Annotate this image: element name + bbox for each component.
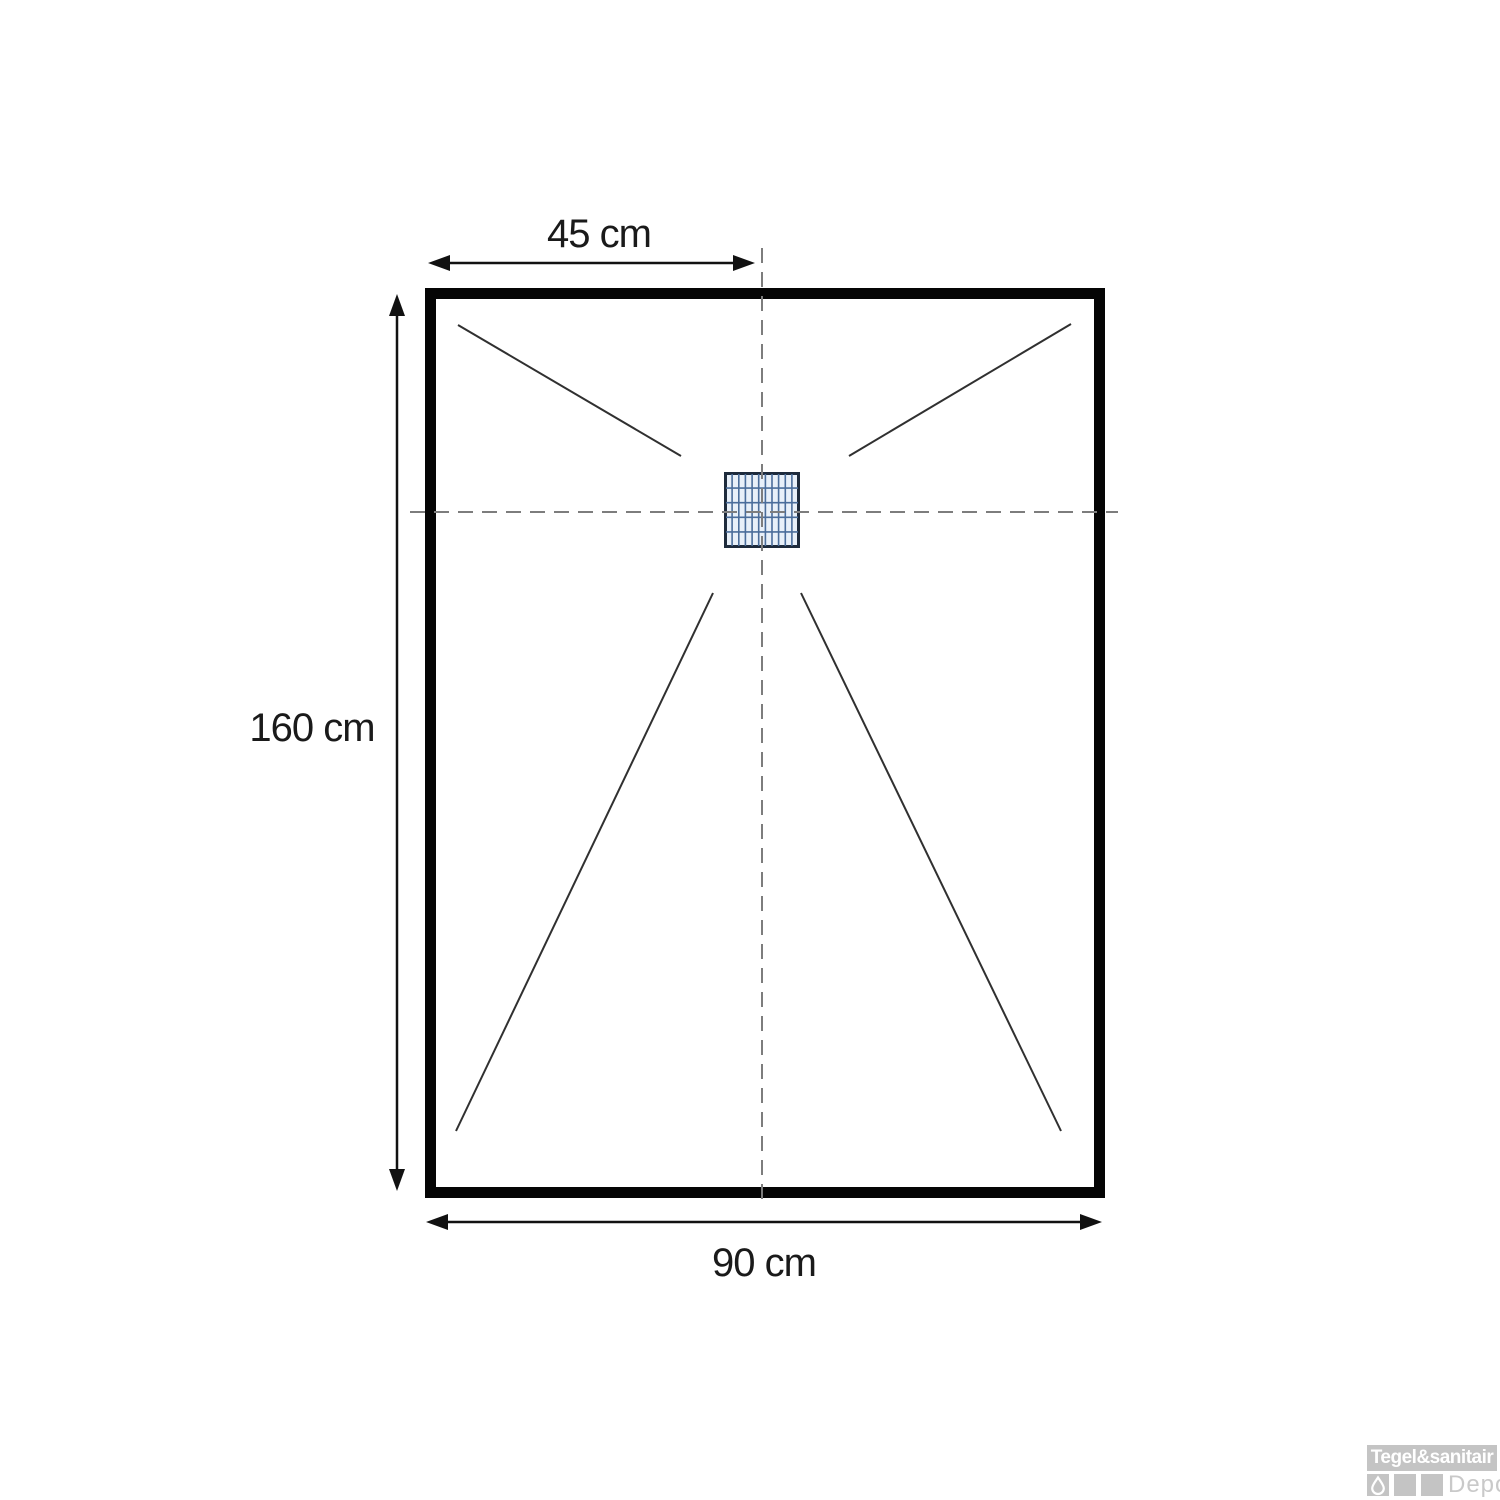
dimension-label-length: 160 cm [249,706,374,750]
drain-grate [726,474,799,547]
shower-tray-outline [431,294,1100,1193]
arrowhead-up-icon [389,294,405,316]
slope-line-top-right [849,324,1071,456]
brand-name: Tegel&sanitair [1367,1445,1497,1471]
brand-square [1421,1474,1443,1496]
dimension-bottom-90cm: 90 cm [426,1214,1102,1285]
arrowhead-left-icon [426,1214,448,1230]
dimension-left-160cm: 160 cm [249,294,405,1191]
slope-line-top-left [458,325,681,456]
slope-line-bottom-right [801,593,1061,1131]
brand-square [1394,1474,1416,1496]
slope-line-bottom-left [456,593,713,1131]
arrowhead-right-icon [1080,1214,1102,1230]
diagram-canvas: 45 cm 160 cm 90 cm Tegel&sanitair [0,0,1500,1500]
arrowhead-right-icon [733,255,755,271]
brand-sub-name: Depot [1448,1474,1500,1496]
dimension-label-width: 90 cm [712,1241,816,1285]
arrowhead-down-icon [389,1169,405,1191]
dimension-label-drain-offset: 45 cm [547,212,651,256]
brand-logo-row: Depot [1367,1474,1497,1496]
dimension-top-45cm: 45 cm [428,212,755,271]
shower-tray-diagram: 45 cm 160 cm 90 cm [0,0,1500,1500]
brand-watermark: Tegel&sanitair Depot [1367,1445,1497,1496]
arrowhead-left-icon [428,255,450,271]
drain-grate-frame [726,474,799,547]
droplet-icon [1367,1474,1389,1496]
